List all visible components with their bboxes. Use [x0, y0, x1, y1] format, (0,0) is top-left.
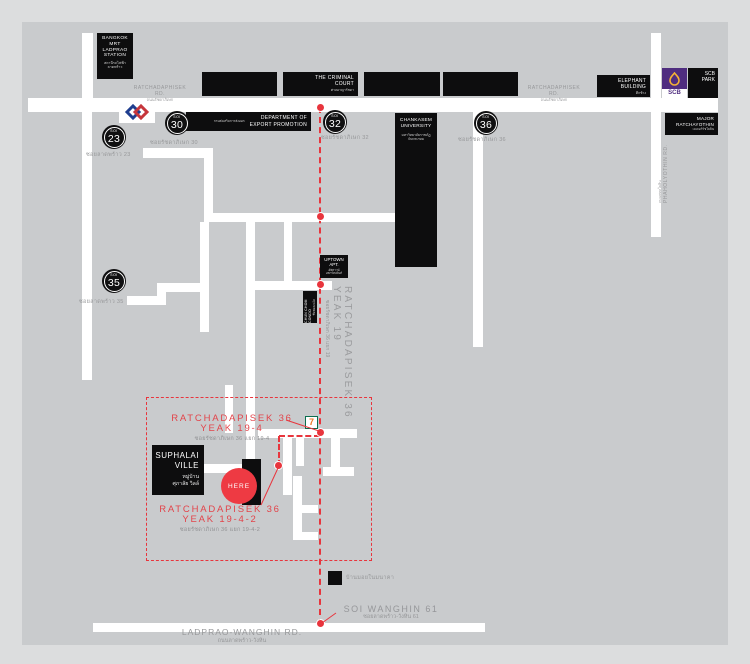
- suphalai-label-th: หมู่บ้าน ศุภาลัย วิลล์: [152, 474, 199, 488]
- road-soi35-b: [166, 283, 202, 292]
- road-v3: [200, 222, 209, 332]
- yeak-19-4-2-label-th: ซอยรัชดาภิเษก 36 แยก 19-4-2: [148, 527, 292, 533]
- scb-chada-icon: [668, 72, 681, 86]
- soi-23-prefix: SOI: [110, 130, 118, 134]
- scb-emblem: [662, 68, 687, 89]
- route-dot-yeak-19-4: [316, 428, 325, 437]
- ladprao-wanghin-label: LADPRAO-WANGHIN RD. ถนนลาดพร้าว-วังหิน: [172, 628, 312, 644]
- phaholyothin-label-en: PHAHOLYOTHIN RD.: [663, 143, 669, 203]
- scb-logo: SCB: [662, 68, 687, 98]
- yeak-19-label-th: ซอยรัชดาภิเษก 36 แยก 19: [323, 300, 331, 436]
- building-chunchom-condo: CHUN CHOM CONDO ชื่นชมคอนโด: [303, 291, 317, 323]
- road-left-upper: [82, 33, 93, 98]
- soi-23-label-th: ซอยลาดพร้าว 23: [86, 151, 131, 159]
- mrt-logo-icon: [121, 103, 153, 121]
- major-label: MAJOR RATCHAYOTHIN: [665, 116, 714, 127]
- chunchom-label-th: ชื่นชมคอนโด: [312, 299, 316, 315]
- mrt-logo: [119, 101, 155, 123]
- yeak-19-4-label-en: RATCHADAPISEK 36 YEAK 19-4: [171, 413, 293, 434]
- soi-32-number: 32: [329, 119, 341, 130]
- criminal-court-label-th: ศาลอาญารัชดา: [283, 88, 354, 93]
- ladprao-wanghin-th: ถนนลาดพร้าว-วังหิน: [172, 638, 312, 644]
- map-canvas: BANGKOK MRT LADPRAO STATION สถานีรถไฟฟ้า…: [22, 22, 728, 645]
- building-bar-1: [202, 72, 277, 96]
- soi-35-label-th: ซอยลาดพร้าว 35: [79, 298, 124, 306]
- road-mid-horizontal: [204, 213, 395, 222]
- soi-35-number: 35: [108, 278, 120, 289]
- seven-eleven-icon: 7: [305, 416, 318, 429]
- major-label-th: เมเจอร์รัชโยธิน: [665, 127, 714, 132]
- ratchadaphisek-left-en: RATCHADAPHISEK RD.: [130, 86, 190, 98]
- soi-23-number: 23: [108, 134, 120, 145]
- suphalai-label: SUPHALAI VILLE: [152, 451, 199, 471]
- here-label: HERE: [228, 483, 250, 490]
- soi-30-number: 30: [171, 120, 183, 131]
- soi-32-prefix: SOI: [331, 115, 339, 119]
- yeak-19-4-label: RATCHADAPISEK 36 YEAK 19-4 ซอยรัชดาภิเษก…: [162, 414, 302, 442]
- export-dept-label: DEPARTMENT OF EXPORT PROMOTION: [250, 115, 307, 128]
- soi-32-label-th: ซอยรัชดาภิเษก 32: [321, 134, 369, 142]
- yeak-19-4-2-label-en: RATCHADAPISEK 36 YEAK 19-4-2: [159, 504, 281, 525]
- mrt-station-label-th: สถานีรถไฟฟ้า ลาดพร้าว: [97, 61, 133, 70]
- seven-eleven-glyph: 7: [309, 418, 314, 427]
- ratchadaphisek-right-th: ถนนรัชดาภิเษก: [524, 98, 584, 103]
- soi-badge-32: SOI 32: [323, 110, 347, 134]
- route-line-main: [319, 107, 321, 625]
- chunchom-label: CHUN CHOM CONDO: [304, 291, 312, 323]
- building-bar-2: [364, 72, 440, 96]
- yeak-19-vertical-label: ซอยรัชดาภิเษก 36 แยก 19 RATCHADAPISEK 36…: [323, 286, 353, 436]
- here-marker: HERE: [221, 468, 257, 504]
- road-soi35-v: [157, 283, 166, 305]
- scb-park-label: SCB PARK: [688, 71, 715, 84]
- ratchadaphisek-right-en: RATCHADAPHISEK RD.: [524, 86, 584, 98]
- route-dot-mid1: [316, 212, 325, 221]
- road-soi36: [473, 112, 483, 347]
- criminal-court-label: THE CRIMINAL COURT: [283, 75, 354, 88]
- ratchadaphisek-left-th: ถนนรัชดาภิเษก: [130, 98, 190, 103]
- soi-badge-36: SOI 36: [474, 111, 498, 135]
- road-v-small: [284, 222, 292, 281]
- elephant-label-th: ตึกช้าง: [597, 91, 646, 96]
- scb-logo-text: SCB: [662, 89, 687, 98]
- soi-36-label-th: ซอยรัชดาภิเษก 36: [458, 136, 506, 144]
- building-criminal-court: THE CRIMINAL COURT ศาลอาญารัชดา: [283, 72, 358, 96]
- route-dot-uptown: [316, 280, 325, 289]
- building-bar-3: [443, 72, 518, 96]
- yeak-19-label-en: RATCHADAPISEK 36 YEAK 19: [331, 286, 353, 436]
- soi-35-prefix: SOI: [110, 274, 118, 278]
- soi-badge-30: SOI 30: [165, 111, 189, 135]
- elephant-label: ELEPHANT BUILDING: [597, 78, 646, 91]
- soi-badge-35: SOI 35: [102, 269, 126, 293]
- soi-30-label-th: ซอยรัชดาภิเษก 30: [150, 139, 198, 147]
- ladprao-wanghin-en: LADPRAO-WANGHIN RD.: [172, 628, 312, 638]
- route-dot-top: [316, 103, 325, 112]
- road-soi30-stub: [143, 148, 213, 158]
- building-elephant: ELEPHANT BUILDING ตึกช้าง: [597, 75, 650, 97]
- phaholyothin-label: ถนนพหลโยธิน PHAHOLYOTHIN RD.: [657, 143, 669, 203]
- soi-30-prefix: SOI: [173, 116, 181, 120]
- building-wanghin-house: [328, 571, 342, 585]
- building-uptown-apt: UPTOWN APT. อัพทาวน์ อพาร์ทเม้นท์: [320, 255, 348, 278]
- ratchadaphisek-label-right: RATCHADAPHISEK RD. ถนนรัชดาภิเษก: [524, 86, 584, 102]
- building-suphalai-ville: SUPHALAI VILLE หมู่บ้าน ศุภาลัย วิลล์: [152, 445, 204, 495]
- soi-badge-23: SOI 23: [102, 125, 126, 149]
- ratchadaphisek-label-left: RATCHADAPHISEK RD. ถนนรัชดาภิเษก: [130, 86, 190, 102]
- yeak-19-4-2-label: RATCHADAPISEK 36 YEAK 19-4-2 ซอยรัชดาภิเ…: [148, 505, 292, 533]
- route-dot-yeak-19-4-2: [274, 461, 283, 470]
- uptown-label-th: อัพทาวน์ อพาร์ทเม้นท์: [320, 269, 348, 276]
- building-scb-park: SCB PARK: [688, 68, 718, 98]
- wanghin-house-label-th: บ้านมอยในมนาคา: [346, 574, 394, 582]
- building-major-ratchayothin: MAJOR RATCHAYOTHIN เมเจอร์รัชโยธิน: [665, 113, 718, 135]
- route-dot-wanghin: [316, 619, 325, 628]
- export-dept-label-th: กรมส่งเสริมการส่งออก: [214, 119, 245, 124]
- soi-wanghin-61-label: SOI WANGHIN 61 ซอยลาดพร้าว-วังหิน 61: [335, 604, 447, 621]
- road-phaholyothin: [651, 33, 661, 237]
- mrt-station-label: BANGKOK MRT LADPRAO STATION: [97, 36, 133, 59]
- soi-36-prefix: SOI: [482, 116, 490, 120]
- uptown-label: UPTOWN APT.: [320, 257, 348, 268]
- soi-wanghin-61-th: ซอยลาดพร้าว-วังหิน 61: [335, 614, 447, 620]
- building-mrt-station: BANGKOK MRT LADPRAO STATION สถานีรถไฟฟ้า…: [97, 33, 133, 79]
- soi-wanghin-61-en: SOI WANGHIN 61: [335, 604, 447, 614]
- yeak-19-4-label-th: ซอยรัชดาภิเษก 36 แยก 19-4: [162, 436, 302, 442]
- map-page: { "colors": { "route_red": "#e8353d", "l…: [0, 0, 750, 664]
- chankasem-label-th: มหาวิทยาลัยราชภัฏ จันทรเกษม: [395, 133, 437, 142]
- soi-36-number: 36: [480, 120, 492, 131]
- chankasem-label: CHANKASEM UNIVERSITY: [395, 118, 437, 130]
- building-export-dept: กรมส่งเสริมการส่งออก DEPARTMENT OF EXPOR…: [186, 112, 311, 131]
- building-chankasem-university: CHANKASEM UNIVERSITY มหาวิทยาลัยราชภัฏ จ…: [395, 113, 437, 267]
